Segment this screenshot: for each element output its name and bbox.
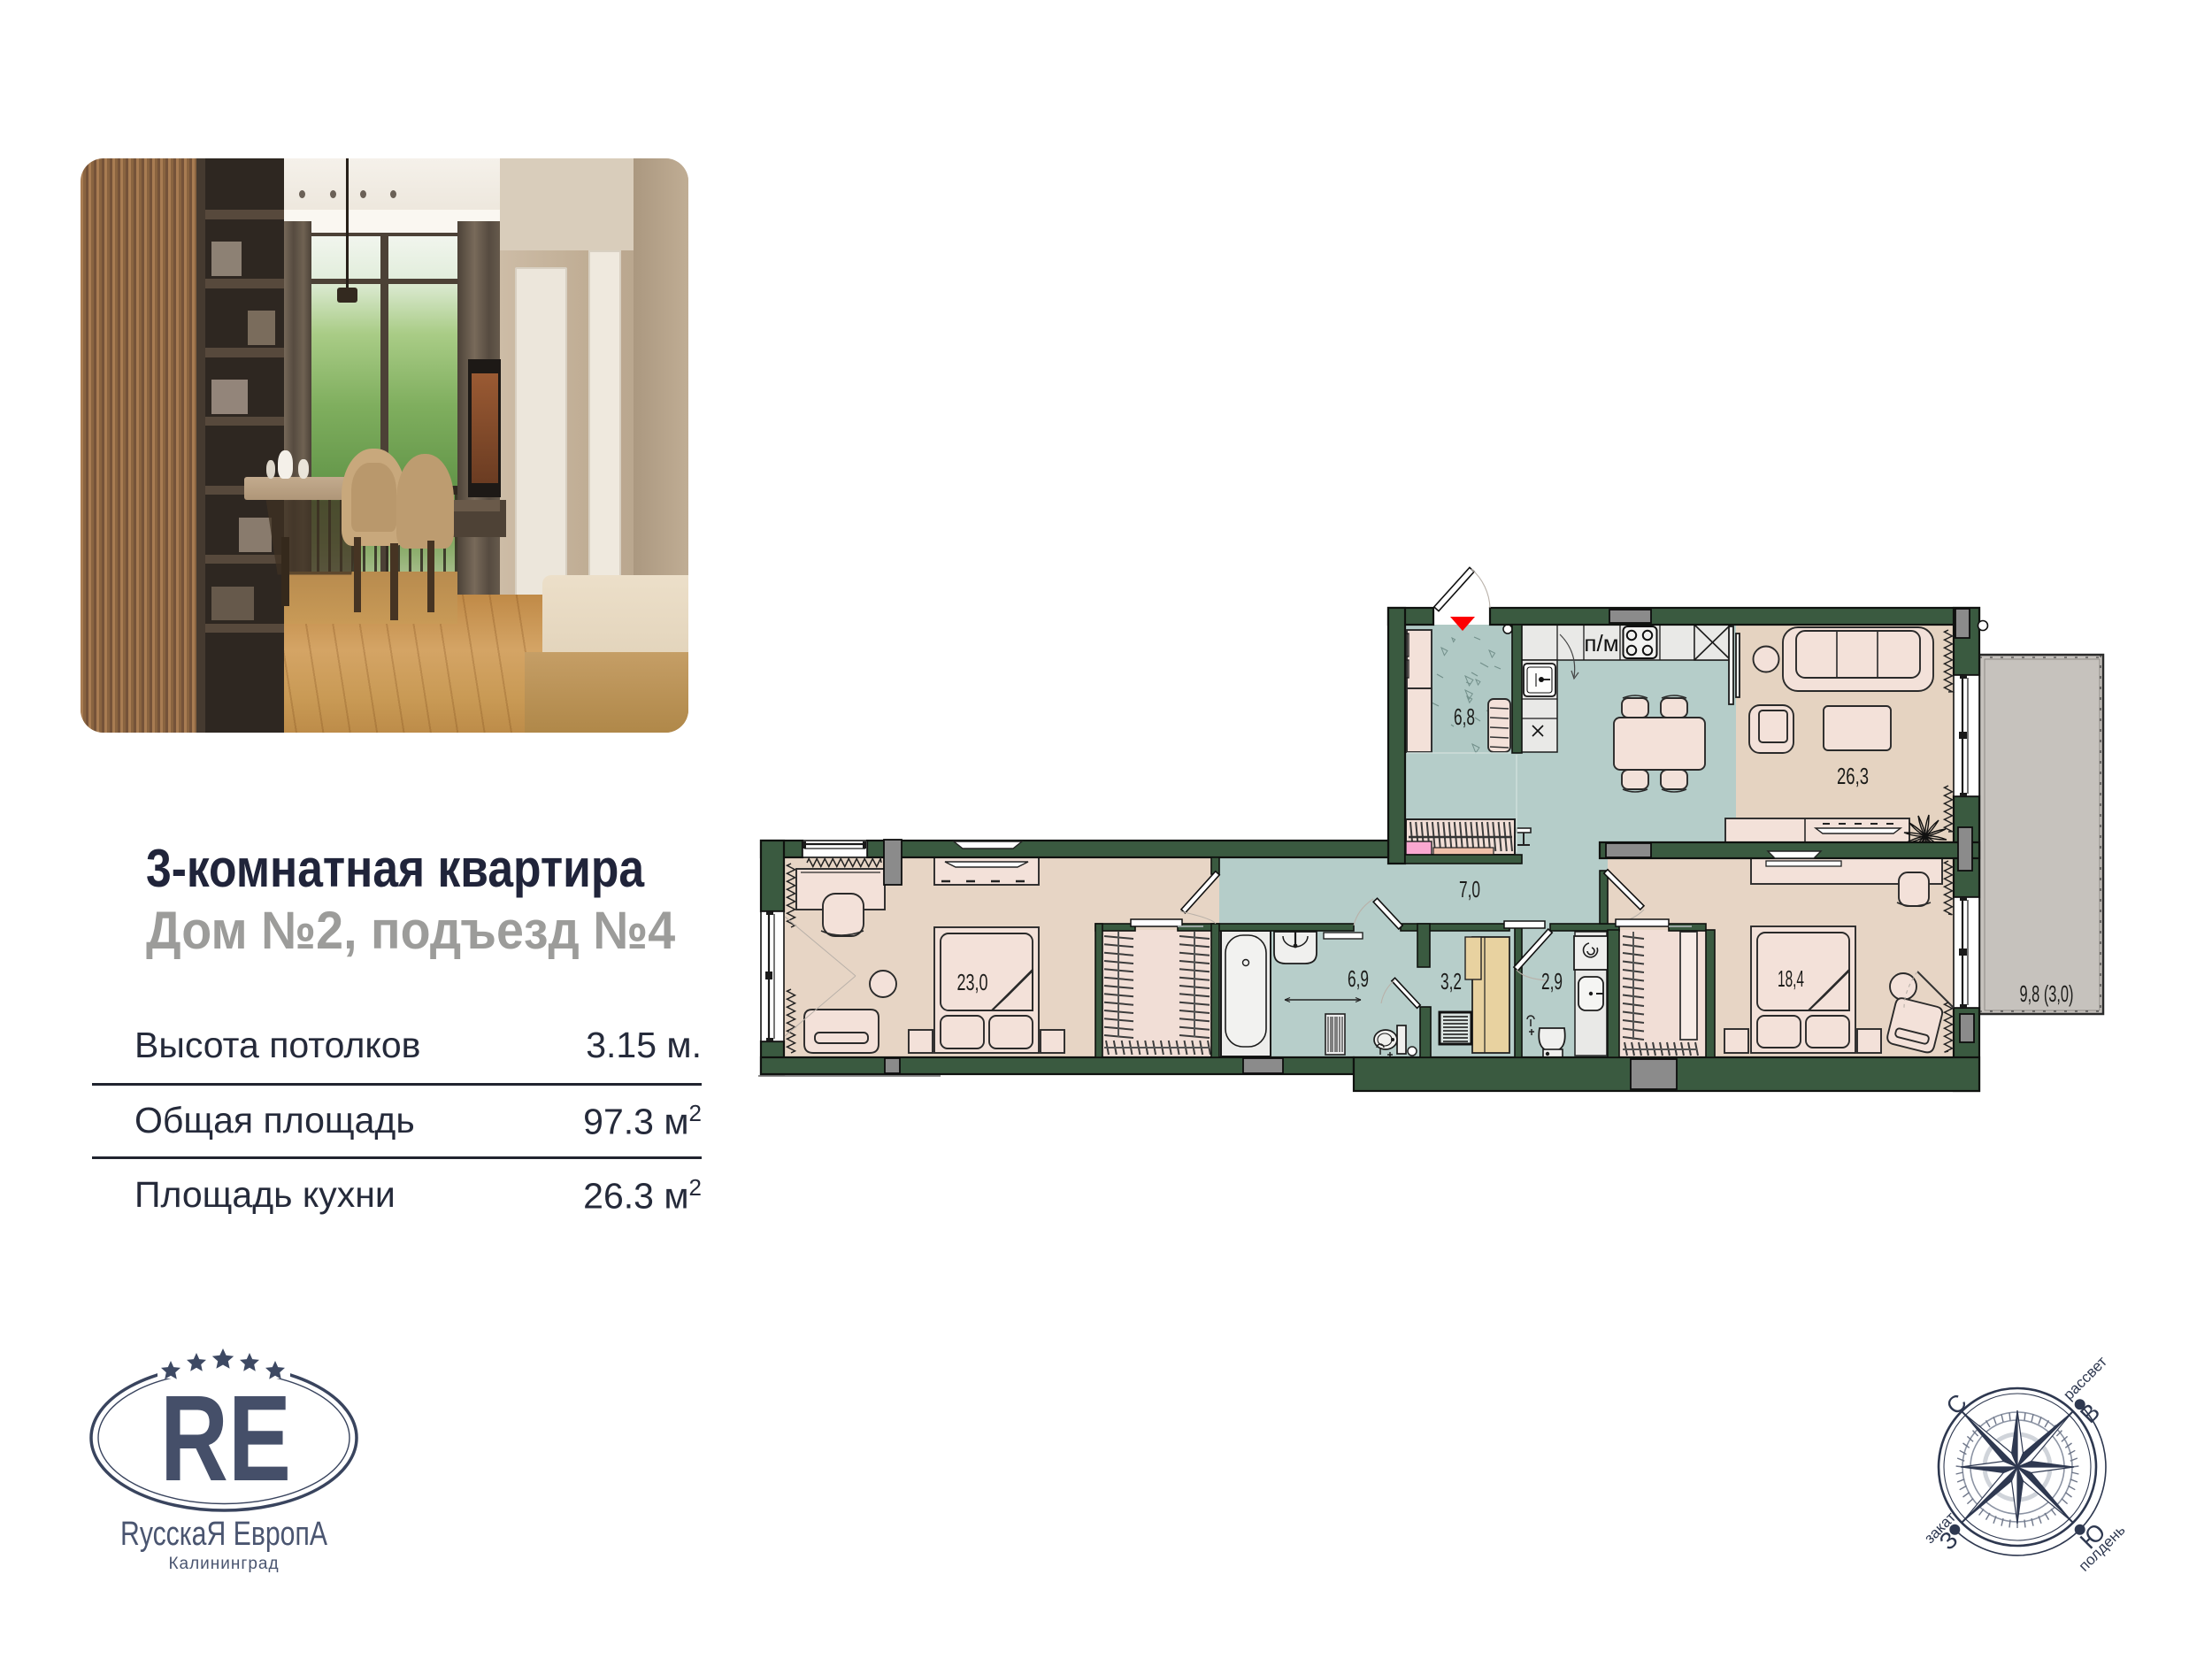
svg-text:6,8: 6,8 [1454, 705, 1475, 730]
svg-text:Калининград: Калининград [168, 1555, 279, 1573]
svg-text:23,0: 23,0 [957, 971, 988, 995]
svg-text:18,4: 18,4 [1778, 967, 1804, 992]
svg-text:26,3: 26,3 [1837, 764, 1869, 789]
svg-text:9,8 (3,0): 9,8 (3,0) [2020, 982, 2074, 1007]
svg-text:RE: RE [160, 1371, 291, 1507]
svg-text:RусскаЯ ЕвропА: RусскаЯ ЕвропА [120, 1516, 328, 1553]
svg-text:3,2: 3,2 [1440, 970, 1462, 995]
svg-text:п/м: п/м [1584, 630, 1618, 657]
svg-text:6,9: 6,9 [1348, 967, 1369, 992]
svg-text:2,9: 2,9 [1541, 970, 1563, 995]
svg-text:7,0: 7,0 [1459, 878, 1480, 902]
svg-text:рассвет: рассвет [2060, 1353, 2110, 1403]
